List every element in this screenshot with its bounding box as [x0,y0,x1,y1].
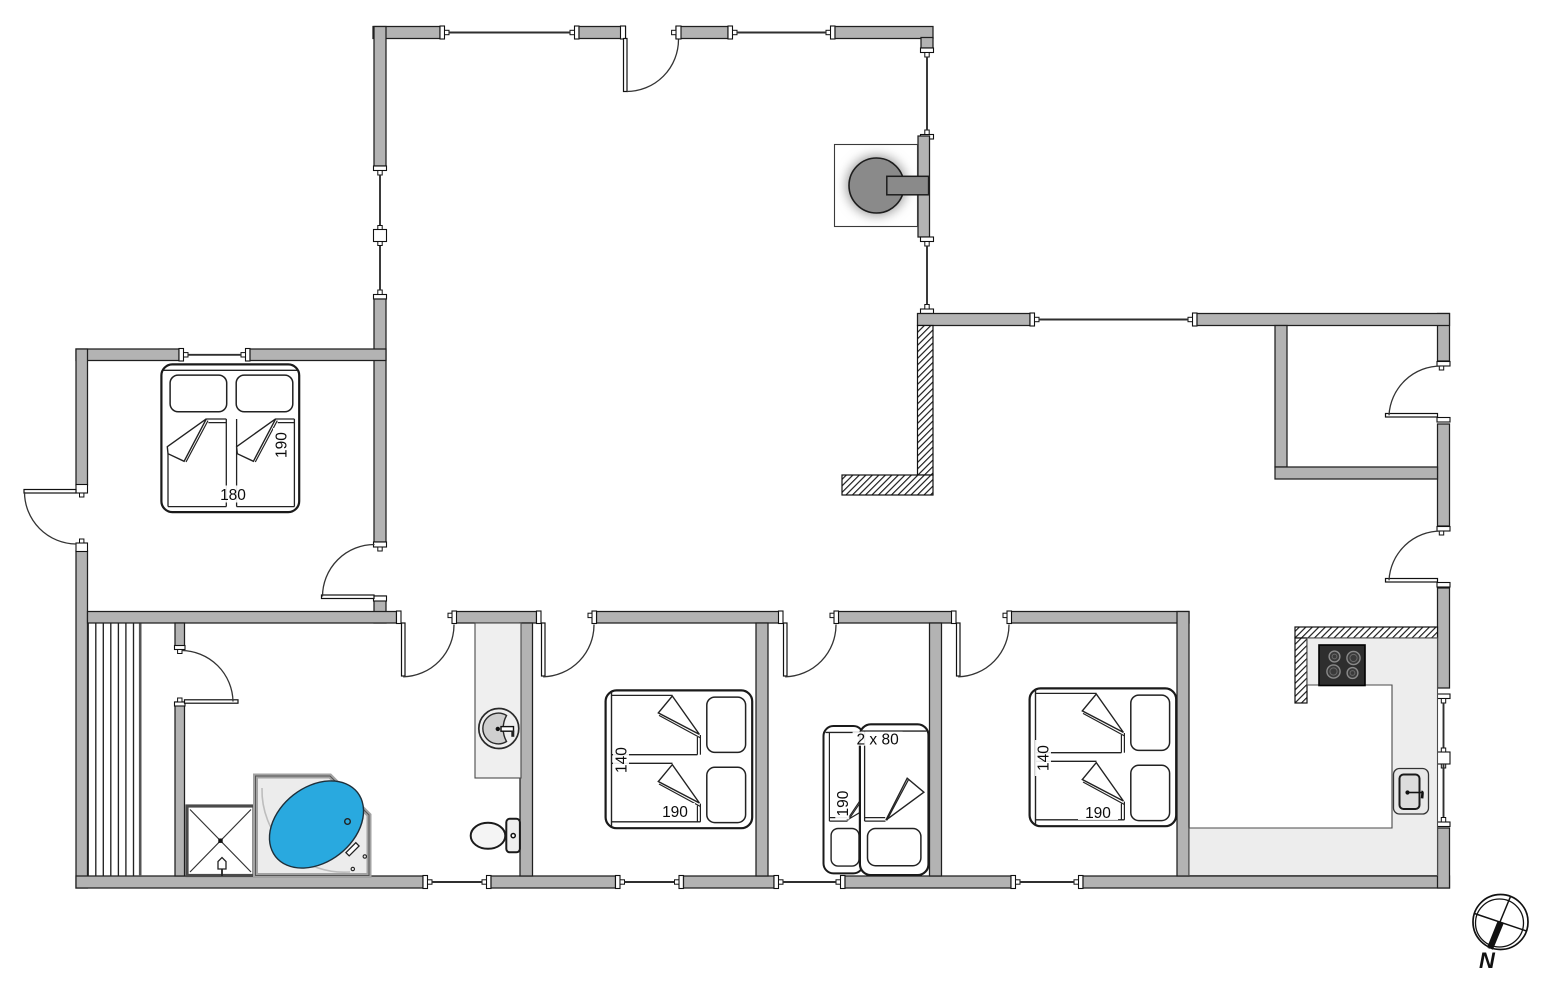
svg-text:190: 190 [835,790,852,816]
svg-text:N: N [1479,948,1496,973]
svg-text:180: 180 [220,487,246,504]
svg-text:190: 190 [1085,805,1111,822]
svg-text:140: 140 [1036,745,1053,771]
svg-text:140: 140 [614,747,631,773]
svg-text:190: 190 [274,432,291,458]
svg-text:190: 190 [662,804,688,821]
svg-text:2 x 80: 2 x 80 [856,731,899,748]
